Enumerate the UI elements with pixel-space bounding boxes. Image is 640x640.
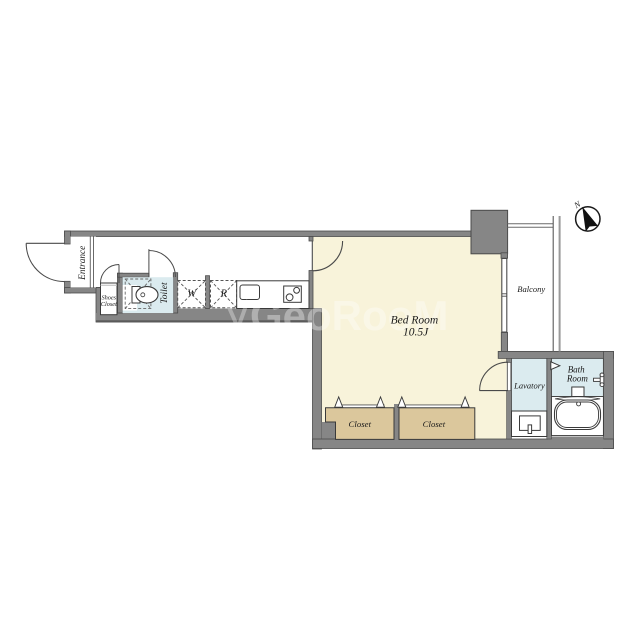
svg-text:Closet: Closet [101, 301, 117, 308]
svg-text:10.5J: 10.5J [403, 326, 429, 338]
svg-text:Balcony: Balcony [517, 284, 545, 294]
svg-text:R: R [220, 288, 228, 299]
svg-text:Toilet: Toilet [160, 282, 170, 304]
svg-text:Bed Room: Bed Room [391, 314, 439, 326]
svg-text:W: W [187, 289, 197, 300]
svg-text:Closet: Closet [423, 419, 446, 429]
svg-text:Room: Room [566, 373, 588, 383]
svg-text:Lavatory: Lavatory [513, 381, 545, 391]
svg-text:Entrance: Entrance [78, 246, 88, 281]
svg-text:Closet: Closet [349, 419, 372, 429]
